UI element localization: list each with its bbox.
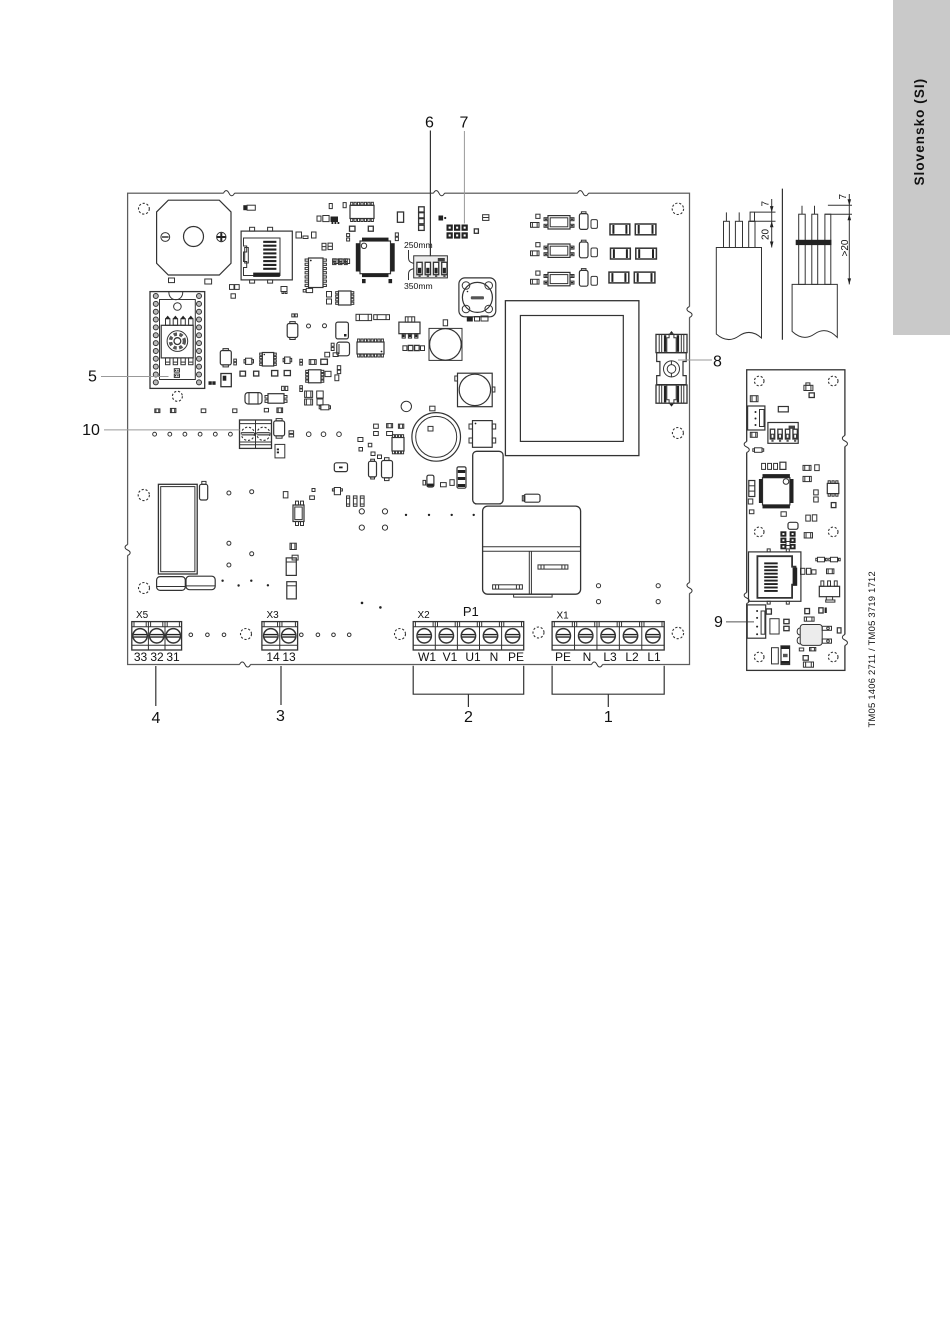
svg-text:4: 4: [152, 710, 161, 727]
svg-text:N: N: [583, 650, 592, 664]
svg-text:N: N: [490, 650, 499, 664]
svg-text:7: 7: [460, 115, 469, 132]
svg-text:L1: L1: [647, 650, 661, 664]
svg-text:8: 8: [713, 354, 722, 371]
svg-text:7: 7: [838, 194, 849, 200]
svg-text:X2: X2: [418, 610, 431, 621]
svg-text:33: 33: [134, 650, 148, 664]
svg-text:2: 2: [464, 709, 473, 726]
svg-text:250mm: 250mm: [404, 240, 433, 250]
svg-text:X5: X5: [136, 610, 149, 621]
svg-text:13: 13: [282, 650, 296, 664]
svg-text:V1: V1: [443, 650, 458, 664]
svg-text:32: 32: [150, 650, 164, 664]
svg-text:U1: U1: [465, 650, 481, 664]
svg-text:9: 9: [714, 614, 723, 631]
svg-text:L3: L3: [603, 650, 617, 664]
svg-text:31: 31: [166, 650, 180, 664]
svg-text:1: 1: [604, 709, 613, 726]
svg-text:6: 6: [425, 115, 434, 132]
svg-text:L2: L2: [625, 650, 639, 664]
svg-text:P1: P1: [463, 604, 479, 619]
svg-text:TM05 1406 2711 / TM05 3719 171: TM05 1406 2711 / TM05 3719 1712: [866, 571, 877, 727]
svg-text:20: 20: [761, 228, 772, 240]
svg-text:>20: >20: [840, 239, 851, 256]
svg-text:PE: PE: [555, 650, 571, 664]
svg-text:X1: X1: [557, 611, 570, 622]
svg-text:10: 10: [82, 422, 100, 439]
svg-text:PE: PE: [508, 650, 524, 664]
svg-text:X3: X3: [267, 610, 280, 621]
svg-text:3: 3: [276, 708, 285, 725]
svg-text:W1: W1: [418, 650, 436, 664]
svg-text:5: 5: [88, 369, 97, 386]
svg-text:7: 7: [761, 201, 772, 207]
svg-text:350mm: 350mm: [404, 281, 433, 291]
svg-text:Slovensko (SI): Slovensko (SI): [912, 78, 927, 186]
svg-text:14: 14: [266, 650, 280, 664]
